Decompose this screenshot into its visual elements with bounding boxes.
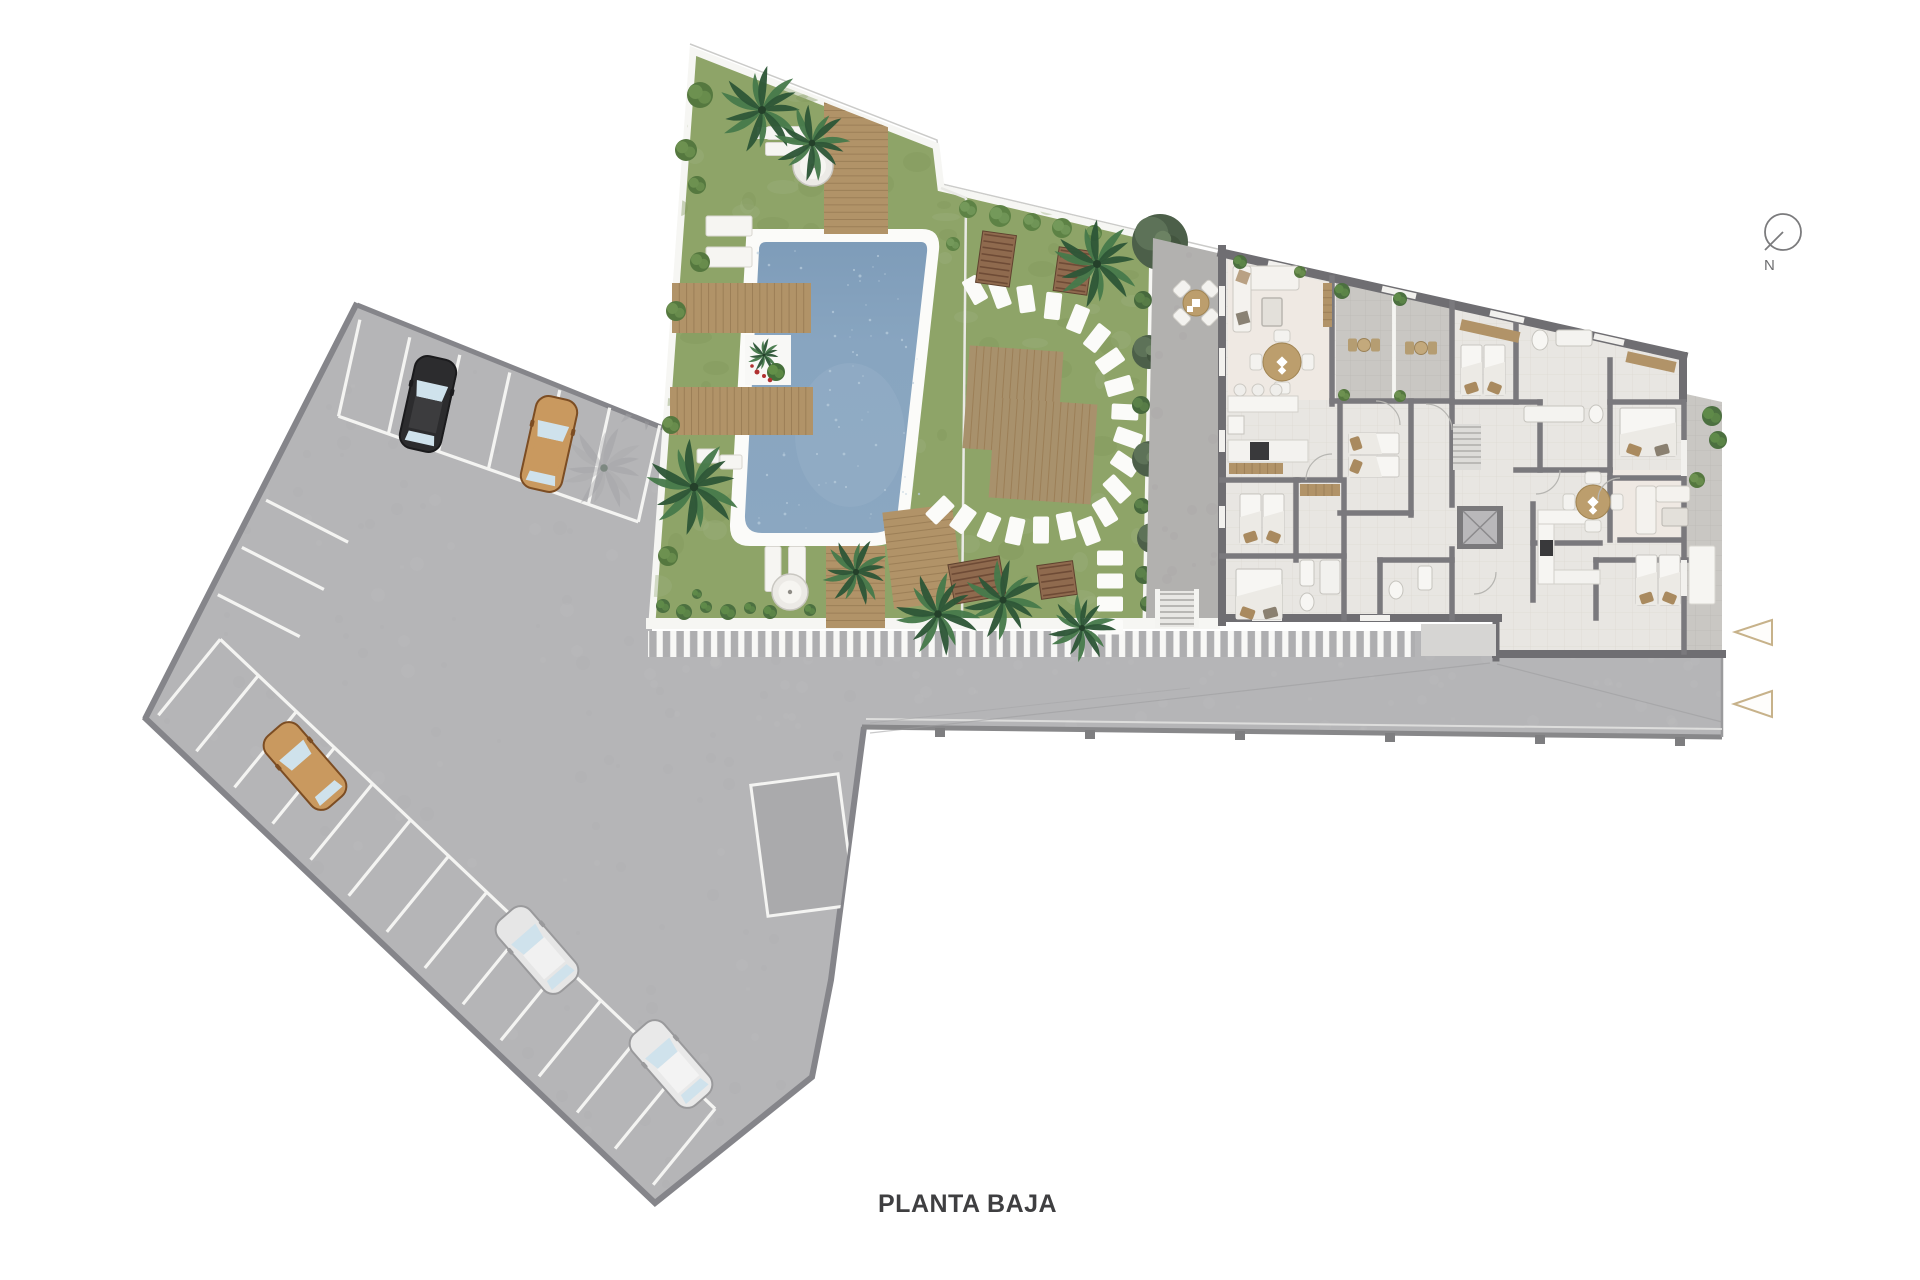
svg-text:PLANTA BAJA: PLANTA BAJA: [878, 1190, 1057, 1218]
svg-text:N: N: [1764, 257, 1775, 274]
